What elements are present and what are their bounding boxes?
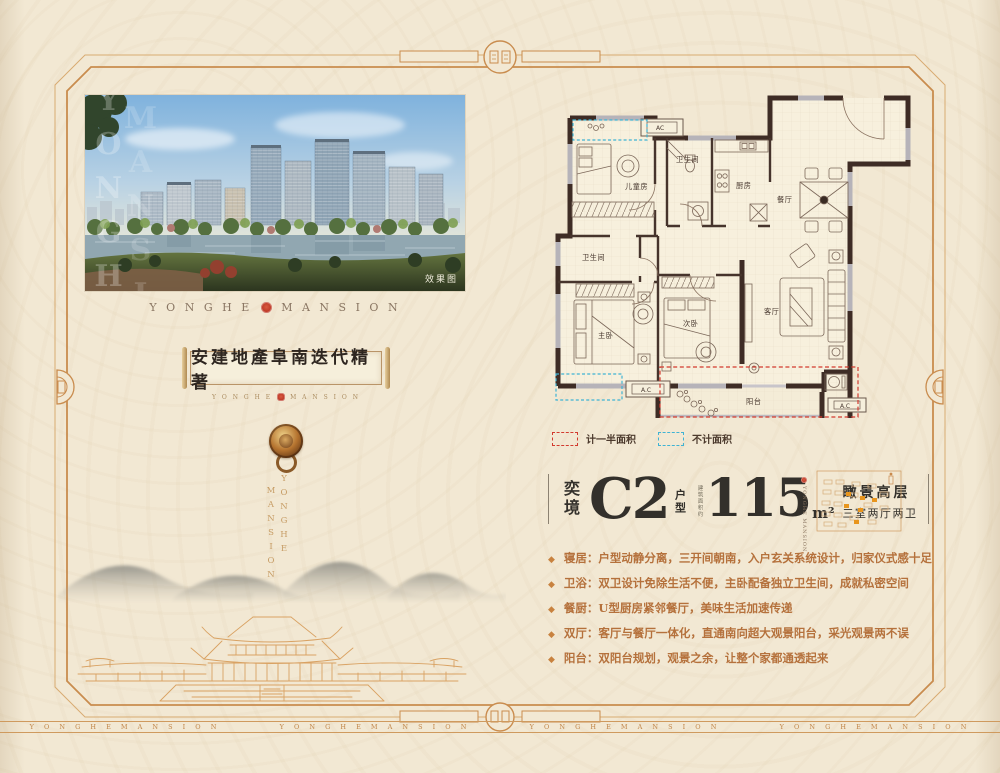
feature-label: 寝居： <box>564 551 599 565</box>
room-label-kitchen: 厨房 <box>736 181 751 190</box>
scroll-rod-icon <box>385 347 390 389</box>
series-name: 奕境 <box>558 480 582 518</box>
site-plan-map <box>816 470 902 532</box>
brand-seal-icon <box>261 302 272 313</box>
room-label-kids: 儿童房 <box>625 182 648 191</box>
frame-top-medallion-icon <box>400 41 600 73</box>
diamond-bullet-icon: ◆ <box>548 553 555 567</box>
title-side-brand: YONGHE MANSION <box>801 477 807 552</box>
unit-model: C2 <box>589 471 669 527</box>
north-indicator-icon <box>889 473 893 484</box>
brand-band-item: Y O N G H E M A N S I O N <box>280 723 471 731</box>
scroll-sub-wordmark: Y O N G H E M A N S I O N <box>182 393 390 401</box>
room-label-balcony: 阳台 <box>746 397 761 406</box>
feature-text: 双卫设计免除生活不便，主卧配备独立卫生间，成就私密空间 <box>598 576 909 590</box>
room-label-dining: 餐厅 <box>777 195 792 204</box>
render-disclaimer-label: 效果图 <box>425 272 458 285</box>
brand-band-item: Y O N G H E M A N S I O N <box>30 723 221 731</box>
legend-no-area: 不计面积 <box>658 431 732 446</box>
no-area-swatch-icon <box>658 432 684 446</box>
floorplan-c2: 儿童房 卫生间 厨房 餐厅 卫生间 主卧 次卧 客厅 阳台 AC A.C A.C <box>540 86 942 426</box>
wordmark-right: M A N S I O N <box>290 394 360 401</box>
diamond-bullet-icon: ◆ <box>548 603 555 617</box>
palace-line-art <box>56 597 488 705</box>
brand-band: Y O N G H E M A N S I O N Y O N G H E M … <box>0 721 1000 733</box>
unit-type-label: 户型 <box>672 489 688 515</box>
brand-vertical-wordmark: MANSION YONGHE <box>266 474 289 584</box>
wordmark-left: Y O N G H E <box>212 394 272 401</box>
diamond-bullet-icon: ◆ <box>548 578 555 592</box>
feature-item: ◆ 阳台： 双阳台规划，观景之余，让整个家都通透起来 <box>546 651 958 667</box>
ac-label-bottom-right: A.C <box>840 403 850 410</box>
hero-scene <box>85 95 465 291</box>
wordmark-right: M A N S I O N <box>281 301 400 314</box>
brand-seal-icon <box>277 393 285 401</box>
room-label-second: 次卧 <box>683 319 698 328</box>
room-label-bath1: 卫生间 <box>676 155 699 164</box>
diamond-bullet-icon: ◆ <box>548 653 555 667</box>
legend-label: 不计面积 <box>692 431 732 446</box>
slogan-calligraphy: 安建地產阜南迭代精著 <box>191 343 381 393</box>
lion-knocker-icon <box>269 424 303 458</box>
feature-label: 阳台： <box>564 651 599 665</box>
feature-label: 双厅： <box>564 626 599 640</box>
vertical-mansion-text: MANSION <box>266 486 276 584</box>
door-knocker-emblem <box>263 424 309 473</box>
legend-label: 计一半面积 <box>586 431 636 446</box>
ac-label-top: AC <box>656 125 664 132</box>
hero-wordmark: Y O N G H E M A N S I O N <box>85 301 465 314</box>
area-legend: 计一半面积 不计面积 <box>552 431 732 446</box>
feature-list: ◆ 寝居： 户型动静分离，三开间朝南，入户玄关系统设计，归家仪式感十足 ◆ 卫浴… <box>546 551 958 676</box>
area-note: 建筑面积约 <box>696 485 704 518</box>
side-brand-text: YONGHE MANSION <box>801 486 807 552</box>
room-label-living: 客厅 <box>764 307 779 316</box>
scroll-rod-icon <box>182 347 187 389</box>
feature-item: ◆ 寝居： 户型动静分离，三开间朝南，入户玄关系统设计，归家仪式感十足 <box>546 551 958 567</box>
brand-band-item: Y O N G H E M A N S I O N <box>530 723 721 731</box>
feature-item: ◆ 双厅： 客厅与餐厅一体化，直通南向超大观景阳台，采光观景两不误 <box>546 626 958 642</box>
brand-seal-icon <box>801 477 807 483</box>
vertical-yonghe-text: YONGHE <box>279 474 289 584</box>
calligraphy-scroll: 安建地產阜南迭代精著 <box>182 349 390 387</box>
feature-text: 户型动静分离，三开间朝南，入户玄关系统设计，归家仪式感十足 <box>598 551 932 565</box>
scroll-paper: 安建地產阜南迭代精著 <box>190 351 382 385</box>
divider <box>548 474 549 524</box>
feature-label: 餐厨： <box>564 601 599 615</box>
feature-item: ◆ 餐厨： U型厨房紧邻餐厅，美味生活加速传递 <box>546 601 958 617</box>
feature-text: 双阳台规划，观景之余，让整个家都通透起来 <box>598 651 828 665</box>
brand-band-item: Y O N G H E M A N S I O N <box>780 723 971 731</box>
room-label-master: 主卧 <box>598 331 613 340</box>
feature-text: 客厅与餐厅一体化，直通南向超大观景阳台，采光观景两不误 <box>598 626 909 640</box>
feature-label: 卫浴： <box>564 576 599 590</box>
legend-half-area: 计一半面积 <box>552 431 636 446</box>
unit-area-value: 115 <box>706 473 812 525</box>
divider <box>928 474 929 524</box>
diamond-bullet-icon: ◆ <box>548 628 555 642</box>
room-label-bath2: 卫生间 <box>582 253 605 262</box>
feature-text: U型厨房紧邻餐厅，美味生活加速传递 <box>598 601 792 615</box>
frame-left-medallion-icon <box>57 370 74 404</box>
wordmark-left: Y O N G H E <box>149 301 252 314</box>
feature-item: ◆ 卫浴： 双卫设计免除生活不便，主卧配备独立卫生间，成就私密空间 <box>546 576 958 592</box>
half-area-swatch-icon <box>552 432 578 446</box>
ac-label-bottom-left: A.C <box>641 387 651 394</box>
hero-render-image: YONGHE MANSION 效果图 <box>85 95 465 291</box>
